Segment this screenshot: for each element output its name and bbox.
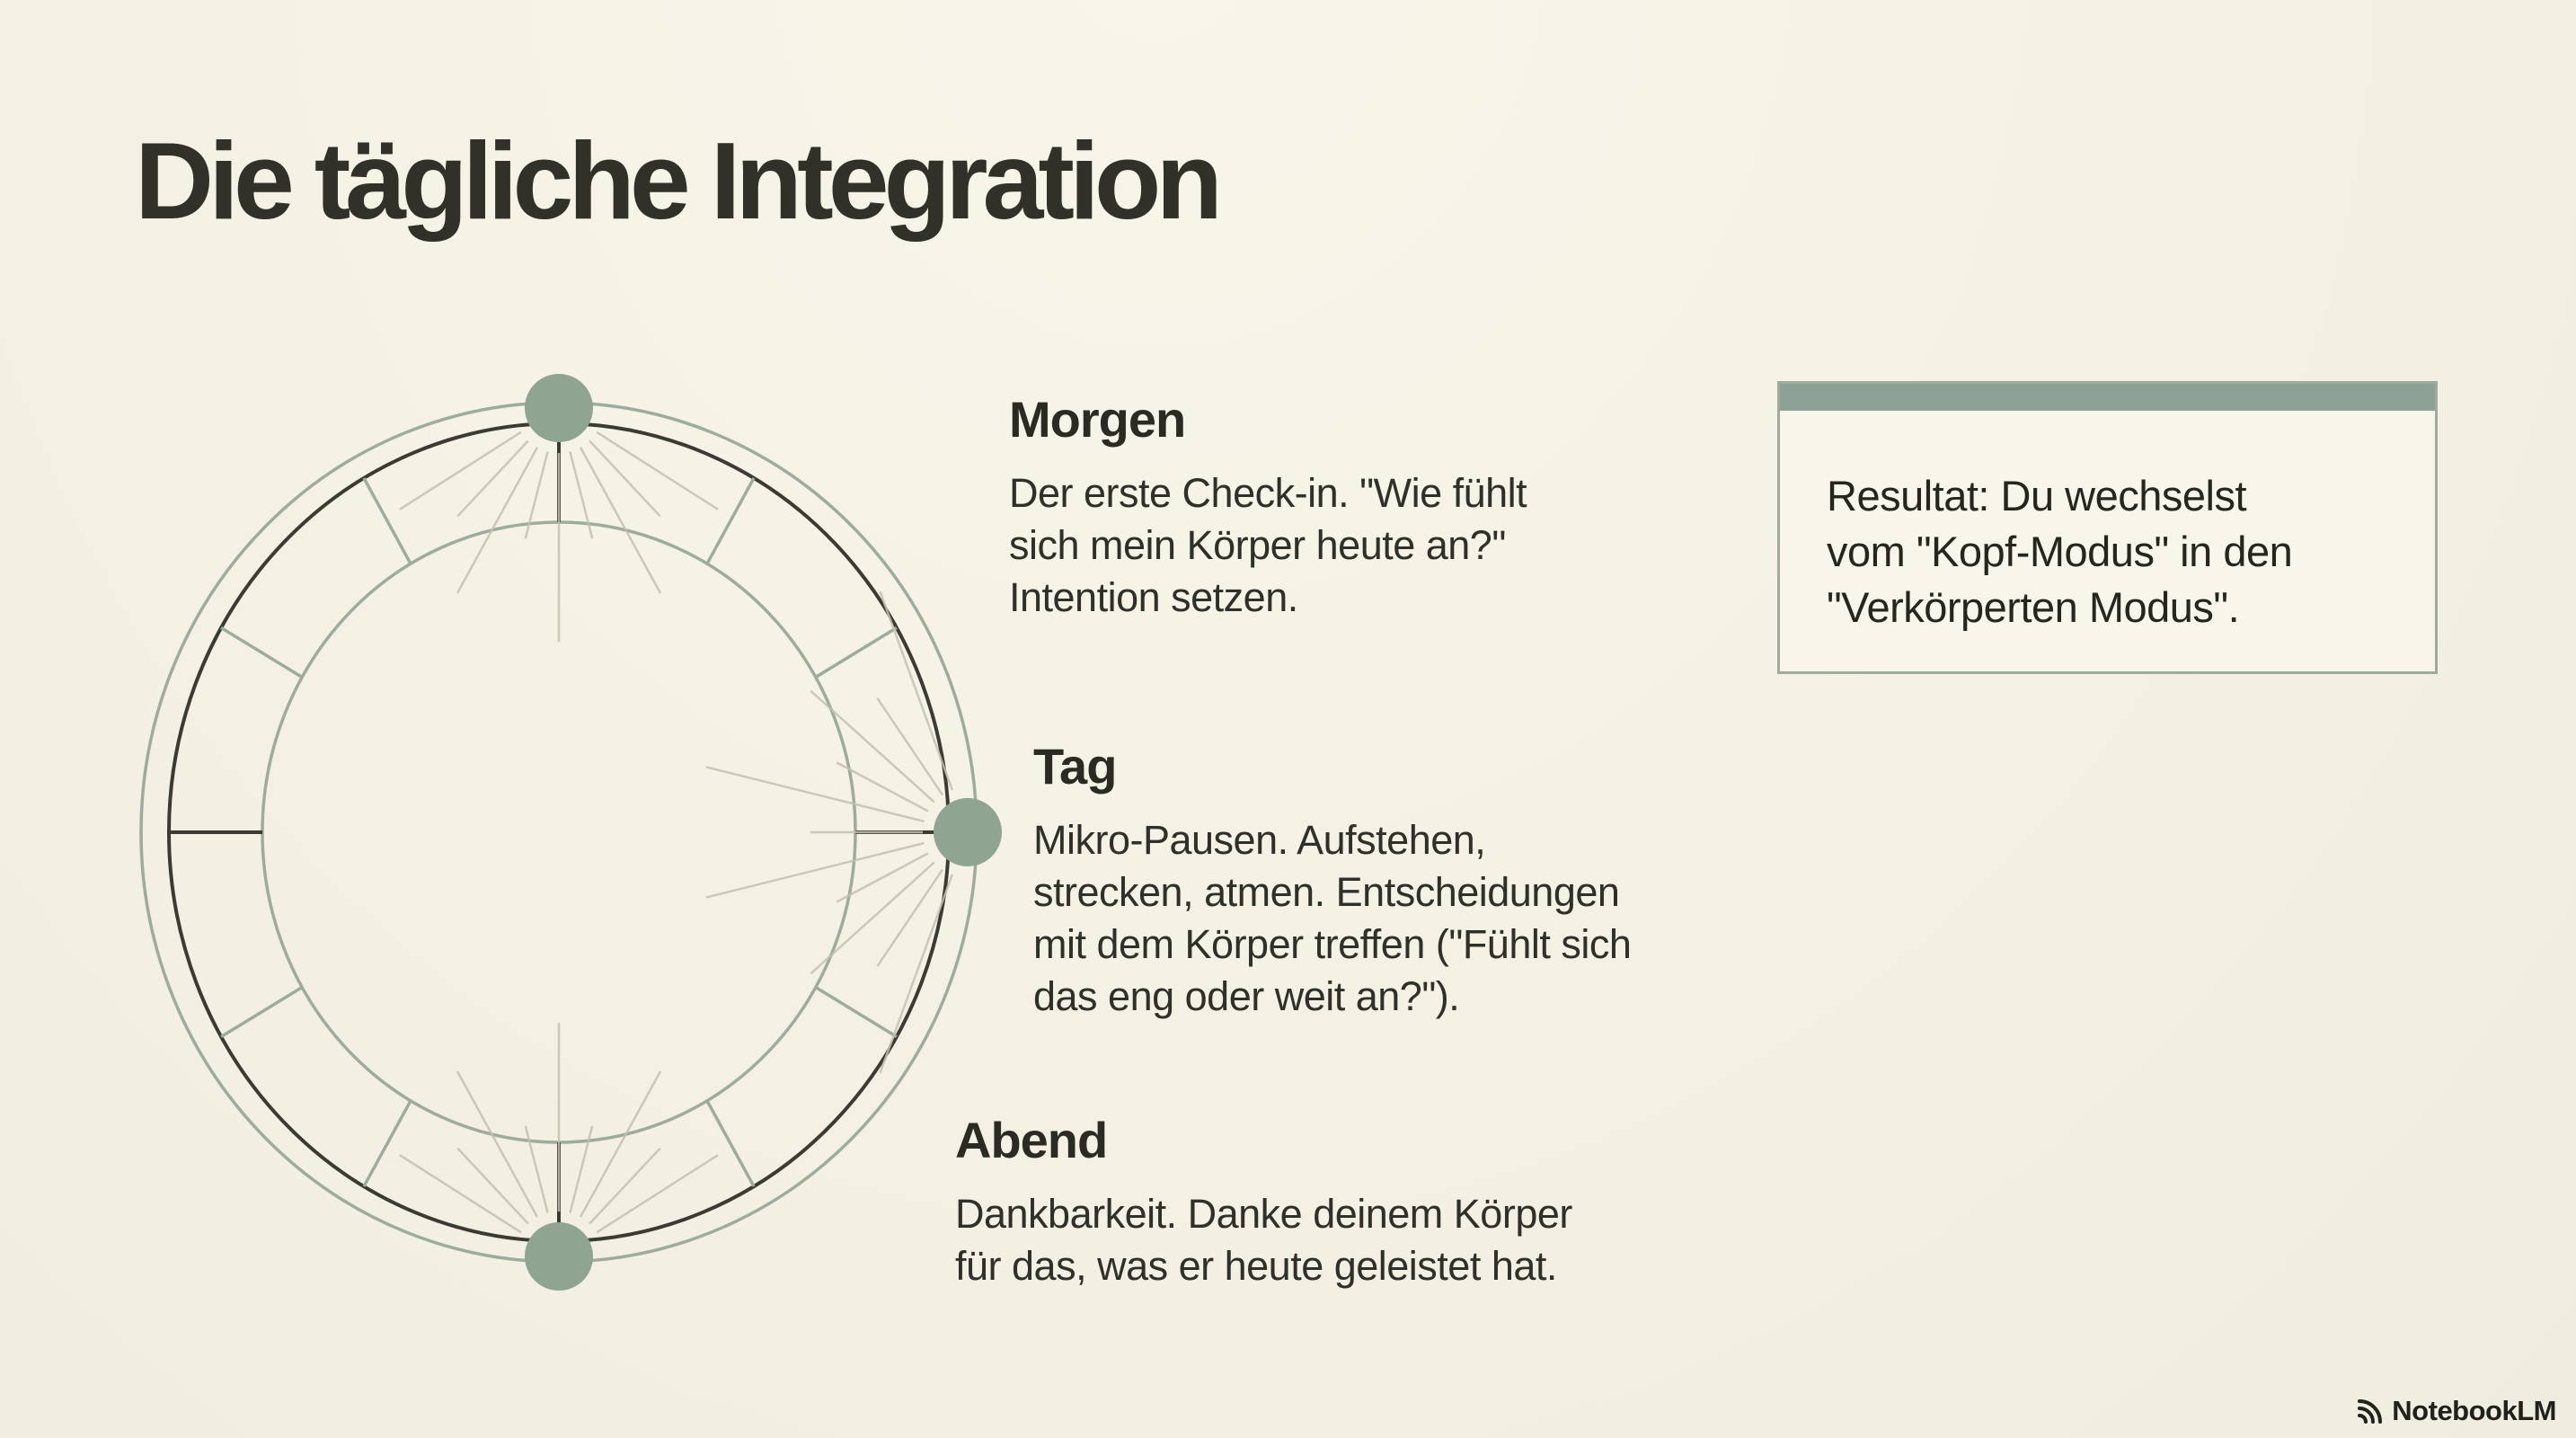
brand-footer: NotebookLM — [2354, 1395, 2556, 1427]
phase-morgen: Morgen Der erste Check-in. "Wie fühlt si… — [1009, 392, 1527, 624]
phase-tag-description: Mikro-Pausen. Aufstehen, strecken, atmen… — [1033, 814, 1631, 1023]
phase-abend-label: Abend — [955, 1113, 1572, 1168]
slide: Die tägliche Integration Morgen Der erst… — [0, 0, 2576, 1438]
result-box-text: Resultat: Du wechselst vom "Kopf-Modus" … — [1780, 411, 2435, 635]
result-box-accent-bar — [1780, 384, 2435, 411]
phase-abend-description: Dankbarkeit. Danke deinem Körper für das… — [955, 1188, 1572, 1292]
notebooklm-icon — [2354, 1398, 2385, 1425]
phase-morgen-label: Morgen — [1009, 392, 1527, 448]
phase-tag: Tag Mikro-Pausen. Aufstehen, strecken, a… — [1033, 739, 1631, 1023]
phase-morgen-description: Der erste Check-in. "Wie fühlt sich mein… — [1009, 467, 1527, 624]
brand-name: NotebookLM — [2392, 1395, 2556, 1427]
phase-tag-label: Tag — [1033, 739, 1631, 794]
result-box: Resultat: Du wechselst vom "Kopf-Modus" … — [1777, 381, 2438, 674]
phase-abend: Abend Dankbarkeit. Danke deinem Körper f… — [955, 1113, 1572, 1292]
